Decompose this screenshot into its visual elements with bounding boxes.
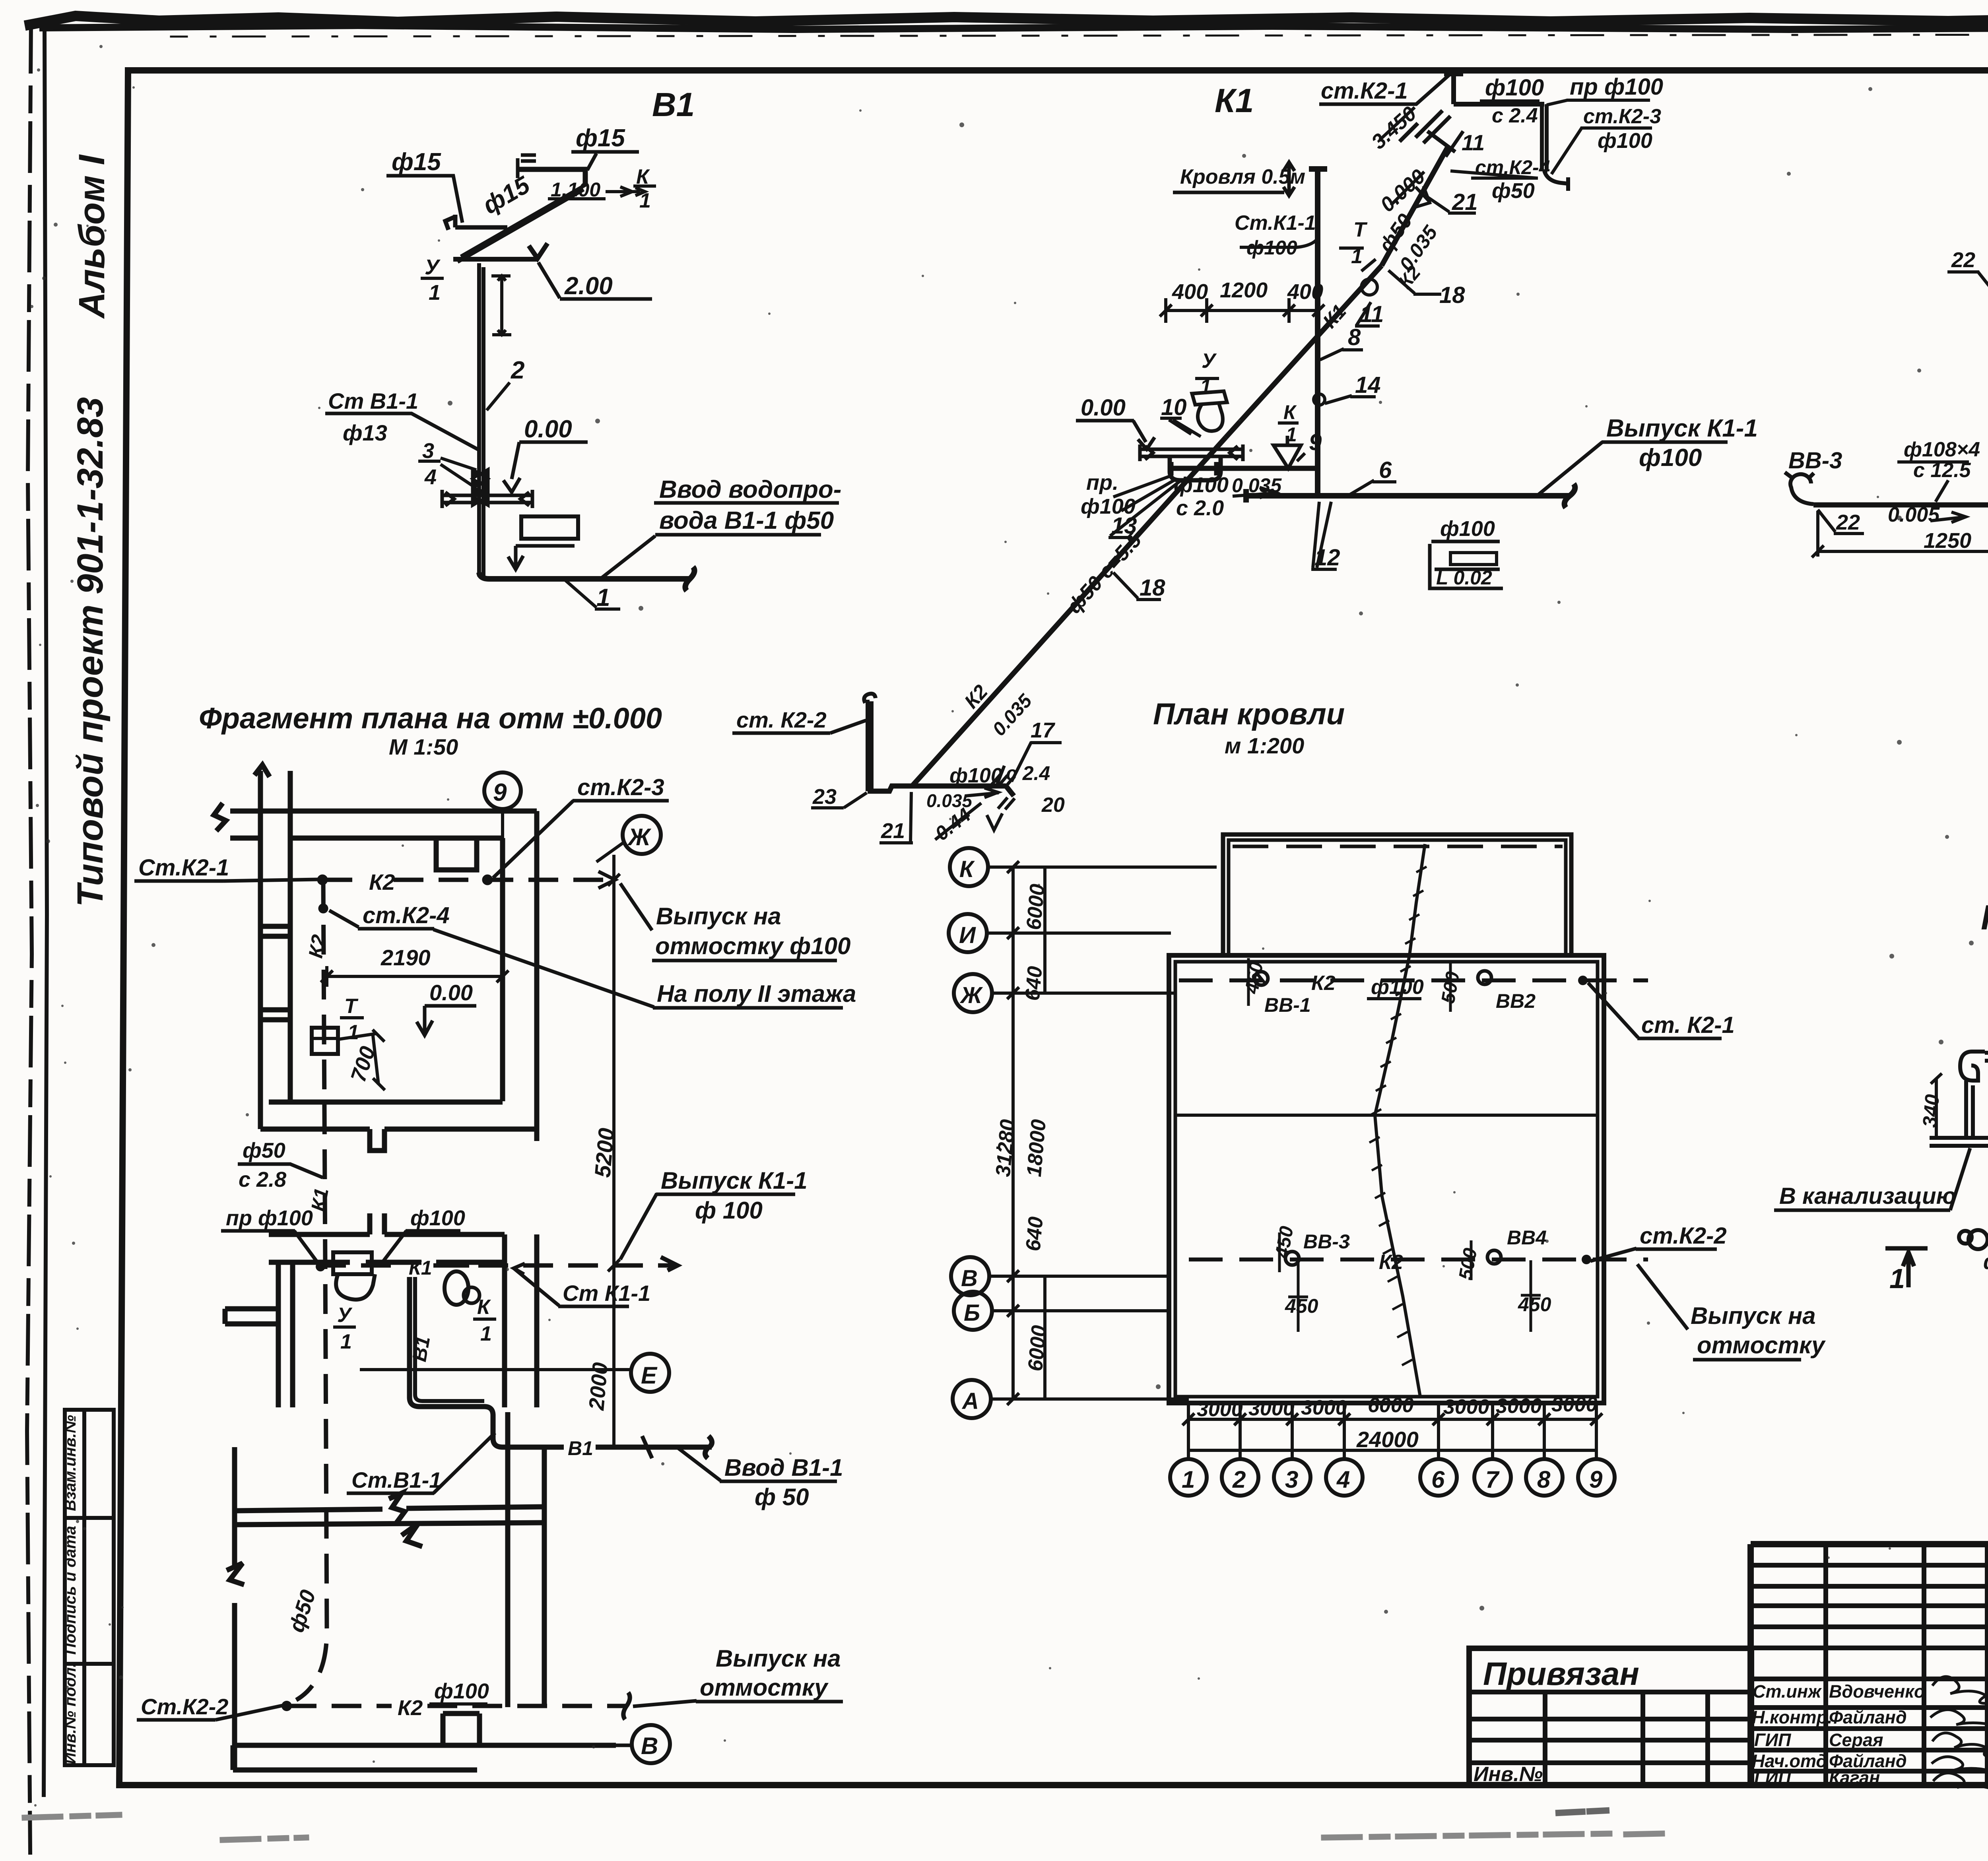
svg-text:18: 18 — [1140, 575, 1165, 601]
svg-text:3000: 3000 — [1197, 1398, 1243, 1421]
svg-text:ст. К2-2: ст. К2-2 — [736, 707, 827, 732]
svg-text:400: 400 — [1287, 280, 1323, 304]
svg-text:4: 4 — [1336, 1466, 1350, 1493]
svg-text:ф50: ф50 — [1492, 179, 1535, 203]
svg-text:пр.: пр. — [1086, 471, 1118, 495]
svg-text:Ст К1-1: Ст К1-1 — [563, 1281, 650, 1306]
svg-text:1200: 1200 — [1220, 278, 1268, 302]
svg-text:ф32: ф32 — [1983, 1250, 1988, 1274]
svg-text:3000: 3000 — [1301, 1396, 1347, 1419]
svg-text:640: 640 — [1021, 965, 1046, 1002]
svg-text:Взам.инв.№: Взам.инв.№ — [62, 1415, 79, 1511]
svg-text:12: 12 — [1314, 545, 1340, 571]
svg-text:Выпуск К1-1: Выпуск К1-1 — [1606, 415, 1758, 442]
svg-text:К2: К2 — [1311, 972, 1336, 995]
svg-text:ГИП: ГИП — [1754, 1730, 1792, 1750]
svg-text:К2: К2 — [369, 869, 395, 895]
svg-text:1: 1 — [1182, 1466, 1195, 1493]
svg-text:Т: Т — [344, 995, 359, 1018]
svg-text:Ст.К1-1: Ст.К1-1 — [1235, 212, 1316, 235]
svg-text:ф100: ф100 — [1440, 517, 1495, 541]
svg-text:9: 9 — [1589, 1466, 1603, 1493]
svg-text:План кровли: План кровли — [1153, 697, 1345, 731]
svg-text:Гидравлический затвор: Гидравлический затвор — [1981, 898, 1988, 937]
svg-text:ф100: ф100 — [1485, 75, 1544, 101]
svg-text:Фрагмент плана на отм ±0.000: Фрагмент плана на отм ±0.000 — [199, 702, 662, 735]
svg-text:1: 1 — [429, 281, 441, 305]
svg-text:К1: К1 — [409, 1257, 432, 1279]
svg-text:Выпуск на: Выпуск на — [656, 903, 781, 930]
svg-text:1: 1 — [1351, 245, 1363, 268]
svg-text:450: 450 — [1285, 1295, 1318, 1317]
svg-text:ВВ-3: ВВ-3 — [1788, 448, 1842, 473]
svg-text:В1: В1 — [652, 86, 695, 123]
svg-text:Ж: Ж — [959, 982, 983, 1008]
svg-text:ф100: ф100 — [1598, 129, 1652, 153]
svg-text:Ж: Ж — [627, 824, 652, 850]
svg-text:ст.К2-3: ст.К2-3 — [1583, 105, 1661, 128]
svg-text:ф 50: ф 50 — [755, 1484, 809, 1510]
svg-text:ст.К2-4: ст.К2-4 — [1475, 156, 1550, 179]
svg-text:У: У — [337, 1304, 353, 1327]
svg-text:с 2.8: с 2.8 — [239, 1168, 286, 1192]
svg-text:Каган: Каган — [1829, 1768, 1880, 1788]
svg-text:Ст В1-1: Ст В1-1 — [328, 388, 418, 413]
svg-text:ф100: ф100 — [1371, 976, 1424, 999]
svg-text:Типовой проект 901-1-32.83: Типовой проект 901-1-32.83 — [70, 397, 111, 907]
svg-text:7: 7 — [1485, 1466, 1500, 1493]
svg-text:18: 18 — [1439, 282, 1465, 308]
svg-text:В: В — [641, 1733, 658, 1759]
svg-text:В1: В1 — [568, 1437, 593, 1459]
svg-text:450: 450 — [1518, 1293, 1551, 1316]
svg-text:10: 10 — [1161, 394, 1187, 420]
svg-text:3000: 3000 — [1443, 1395, 1489, 1419]
svg-text:пр ф100: пр ф100 — [226, 1206, 313, 1230]
svg-text:Ст.В1-1: Ст.В1-1 — [351, 1467, 441, 1492]
svg-text:Вдовченко: Вдовченко — [1829, 1681, 1925, 1702]
svg-text:вода В1-1 ф50: вода В1-1 ф50 — [659, 507, 834, 534]
svg-text:6000: 6000 — [1368, 1394, 1414, 1417]
svg-text:К2: К2 — [1379, 1251, 1403, 1274]
svg-text:отмостку ф100: отмостку ф100 — [655, 933, 850, 959]
svg-text:ст.К2-4: ст.К2-4 — [363, 902, 450, 928]
svg-text:К1: К1 — [1215, 82, 1254, 119]
svg-text:В1: В1 — [408, 1334, 434, 1363]
svg-text:0.035: 0.035 — [1232, 474, 1282, 497]
svg-text:Выпуск К1-1: Выпуск К1-1 — [661, 1167, 808, 1194]
svg-text:1.100: 1.100 — [551, 179, 600, 201]
svg-text:отмостку: отмостку — [700, 1674, 829, 1701]
svg-text:11: 11 — [1360, 301, 1384, 327]
svg-text:14: 14 — [1355, 372, 1381, 398]
svg-text:340: 340 — [1918, 1093, 1943, 1128]
svg-text:0.00: 0.00 — [1081, 395, 1126, 421]
svg-text:ф13: ф13 — [343, 420, 387, 445]
svg-text:ВВ-3: ВВ-3 — [1303, 1230, 1350, 1253]
svg-text:1: 1 — [596, 584, 610, 611]
svg-text:Альбом I: Альбом I — [72, 154, 112, 319]
svg-text:6000: 6000 — [1022, 883, 1049, 931]
svg-text:ст. К2-1: ст. К2-1 — [1641, 1012, 1735, 1038]
svg-text:1250: 1250 — [1924, 529, 1971, 553]
svg-text:ст.К2-1: ст.К2-1 — [1321, 78, 1408, 104]
svg-text:ф100: ф100 — [410, 1206, 465, 1230]
svg-text:1: 1 — [1200, 375, 1211, 398]
svg-text:пр ф100: пр ф100 — [1570, 74, 1663, 100]
svg-text:И: И — [959, 922, 976, 948]
svg-text:В: В — [961, 1265, 978, 1291]
svg-text:21: 21 — [1452, 189, 1478, 215]
svg-text:20: 20 — [1041, 794, 1065, 817]
svg-text:В канализацию: В канализацию — [1779, 1183, 1956, 1209]
svg-text:2: 2 — [1232, 1466, 1246, 1493]
svg-text:22: 22 — [1836, 510, 1860, 534]
svg-text:К: К — [959, 856, 975, 882]
svg-text:с 12.5: с 12.5 — [1913, 459, 1971, 482]
svg-text:Кровля 0.5м: Кровля 0.5м — [1180, 165, 1305, 188]
svg-text:3000: 3000 — [1496, 1395, 1542, 1418]
svg-text:Выпуск на: Выпуск на — [716, 1645, 841, 1672]
svg-text:ф15: ф15 — [576, 124, 625, 152]
svg-text:4: 4 — [424, 465, 437, 489]
svg-text:Т: Т — [1353, 218, 1368, 241]
svg-text:ф 100: ф 100 — [695, 1197, 763, 1224]
svg-text:ГИП: ГИП — [1754, 1768, 1792, 1788]
svg-text:Инв.№ подл.: Инв.№ подл. — [62, 1663, 79, 1764]
svg-text:3000: 3000 — [1248, 1397, 1295, 1420]
svg-text:Подпись и дата: Подпись и дата — [62, 1526, 79, 1655]
svg-text:2.00: 2.00 — [564, 272, 613, 300]
svg-text:ст.К2-2: ст.К2-2 — [1640, 1223, 1727, 1249]
svg-text:23: 23 — [812, 785, 837, 809]
svg-text:ф100: ф100 — [1639, 444, 1702, 472]
svg-text:К: К — [636, 165, 650, 188]
svg-text:1: 1 — [1889, 1263, 1905, 1294]
svg-text:Ст.инж: Ст.инж — [1753, 1681, 1822, 1702]
svg-text:1: 1 — [480, 1322, 492, 1345]
svg-text:3: 3 — [1285, 1466, 1298, 1493]
svg-text:22: 22 — [1951, 248, 1975, 272]
svg-text:Привязан: Привязан — [1483, 1656, 1639, 1692]
svg-text:Е: Е — [641, 1362, 658, 1389]
svg-text:м 1:200: м 1:200 — [1225, 733, 1304, 758]
svg-text:Выпуск на: Выпуск на — [1691, 1302, 1816, 1329]
svg-text:400: 400 — [1172, 280, 1208, 304]
svg-text:9: 9 — [1309, 429, 1322, 455]
svg-text:21: 21 — [881, 819, 905, 843]
svg-text:Ввод В1-1: Ввод В1-1 — [724, 1454, 843, 1481]
svg-text:К: К — [477, 1296, 491, 1319]
svg-text:ф100: ф100 — [434, 1679, 489, 1703]
svg-text:8: 8 — [1348, 324, 1361, 350]
svg-text:ВВ-1: ВВ-1 — [1264, 994, 1311, 1016]
svg-text:3: 3 — [422, 439, 434, 463]
svg-text:Файланд: Файланд — [1829, 1707, 1907, 1727]
svg-text:ф100: ф100 — [1174, 473, 1229, 497]
svg-text:У: У — [425, 255, 441, 279]
svg-text:640: 640 — [1021, 1216, 1047, 1252]
svg-text:с 2.4: с 2.4 — [1492, 104, 1538, 127]
svg-text:6000: 6000 — [1024, 1324, 1051, 1372]
svg-text:Серая: Серая — [1829, 1730, 1883, 1750]
svg-text:М 1:50: М 1:50 — [389, 734, 458, 759]
svg-text:ф100: ф100 — [949, 764, 1002, 787]
svg-text:24000: 24000 — [1356, 1427, 1419, 1452]
svg-text:ф100: ф100 — [1246, 237, 1297, 259]
svg-text:ф15: ф15 — [392, 148, 441, 176]
svg-text:Ввод водопро-: Ввод водопро- — [659, 476, 841, 503]
svg-text:ВВ4: ВВ4 — [1507, 1226, 1547, 1249]
svg-text:А: А — [961, 1388, 979, 1414]
svg-text:ф108×4: ф108×4 — [1904, 438, 1980, 461]
svg-text:9: 9 — [493, 779, 507, 806]
svg-text:0.00: 0.00 — [524, 415, 572, 443]
svg-text:К2: К2 — [304, 933, 330, 960]
svg-text:Ст.К2-1: Ст.К2-1 — [138, 855, 229, 881]
svg-text:17: 17 — [1031, 718, 1056, 742]
svg-text:0.035: 0.035 — [926, 790, 973, 811]
svg-text:ВВ2: ВВ2 — [1496, 990, 1536, 1012]
svg-text:11: 11 — [1462, 130, 1485, 155]
svg-text:отмостку: отмостку — [1697, 1332, 1826, 1358]
svg-text:Б: Б — [964, 1300, 980, 1326]
svg-text:6: 6 — [1379, 457, 1392, 483]
svg-text:К2: К2 — [398, 1696, 423, 1720]
svg-text:1: 1 — [639, 189, 651, 212]
svg-text:ст.К2-3: ст.К2-3 — [577, 774, 664, 800]
svg-text:2: 2 — [511, 357, 524, 384]
svg-text:8: 8 — [1537, 1466, 1551, 1493]
svg-text:Инв.№: Инв.№ — [1474, 1763, 1543, 1786]
svg-text:1: 1 — [348, 1021, 359, 1044]
svg-text:2190: 2190 — [381, 945, 431, 970]
svg-text:Н.контр.: Н.контр. — [1752, 1707, 1832, 1727]
svg-text:L 0.02: L 0.02 — [1436, 567, 1492, 589]
svg-text:К: К — [1283, 401, 1297, 423]
svg-text:На полу II этажа: На полу II этажа — [657, 980, 856, 1007]
svg-text:0.005: 0.005 — [1888, 503, 1940, 526]
svg-text:6: 6 — [1431, 1466, 1445, 1493]
svg-text:с 2.0: с 2.0 — [1176, 496, 1224, 520]
svg-text:ф50: ф50 — [243, 1139, 285, 1162]
svg-text:3000: 3000 — [1551, 1393, 1598, 1416]
svg-text:1: 1 — [340, 1330, 352, 1353]
svg-text:с 2.4: с 2.4 — [1006, 762, 1050, 784]
svg-text:Ст.К2-2: Ст.К2-2 — [141, 1694, 228, 1719]
svg-text:1: 1 — [1286, 423, 1297, 446]
svg-text:0.00: 0.00 — [429, 980, 473, 1005]
svg-text:У: У — [1202, 349, 1217, 373]
